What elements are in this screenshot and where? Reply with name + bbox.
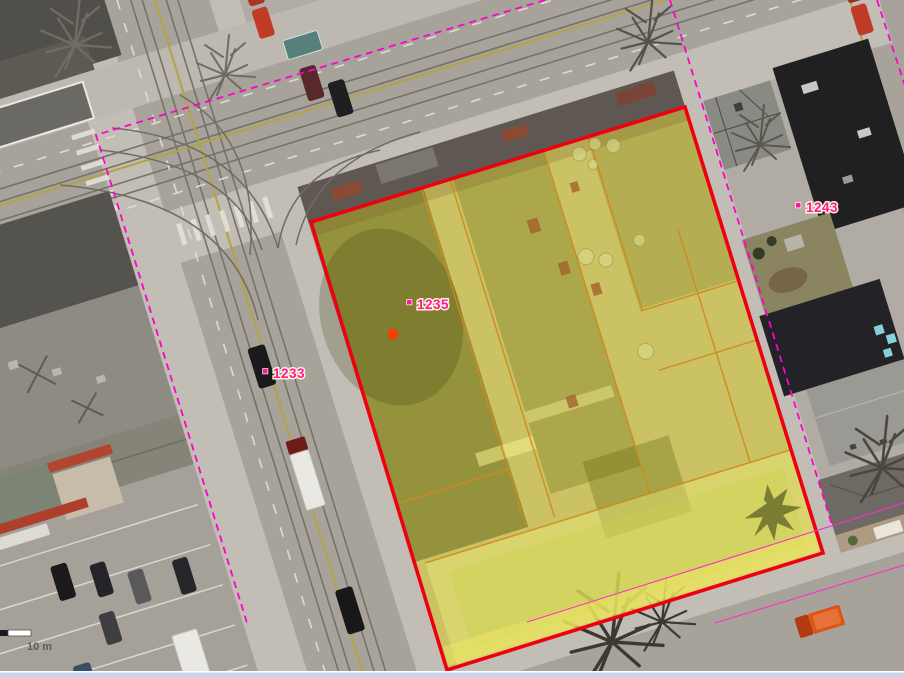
label-dot-1233 xyxy=(263,369,268,374)
parcel-label-1243[interactable]: 1243 xyxy=(806,200,838,215)
parcel-label-1235[interactable]: 1235 xyxy=(417,297,449,312)
label-dot-1243 xyxy=(796,203,801,208)
scale-bar-left xyxy=(0,630,8,636)
aerial-map-canvas: 1233 1235 1243 10 m xyxy=(0,0,904,677)
window-bottom-strip xyxy=(0,673,904,677)
selected-point-marker[interactable] xyxy=(388,329,398,339)
scale-bar-right xyxy=(8,630,31,636)
parcel-label-1233[interactable]: 1233 xyxy=(273,366,305,381)
window-bottom-edge xyxy=(0,671,904,677)
scale-bar-label: 10 m xyxy=(27,641,52,653)
label-dot-1235 xyxy=(407,300,412,305)
map-viewport[interactable]: 1233 1235 1243 10 m xyxy=(0,0,904,677)
